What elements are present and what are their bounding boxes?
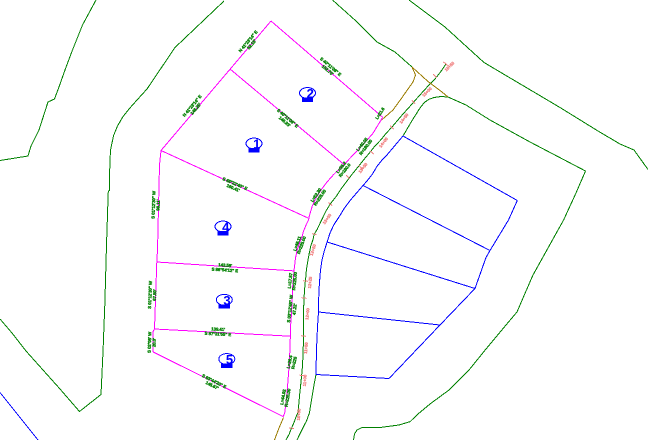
svg-text:11+50: 11+50 xyxy=(303,341,309,354)
svg-text:20.0': 20.0' xyxy=(151,338,156,347)
svg-text:98.11': 98.11' xyxy=(155,199,160,210)
svg-text:12+25: 12+25 xyxy=(307,276,313,289)
svg-text:11+00: 11+00 xyxy=(302,374,308,387)
svg-text:67.50': 67.50' xyxy=(152,289,157,301)
svg-text:10+50: 10+50 xyxy=(296,408,302,421)
